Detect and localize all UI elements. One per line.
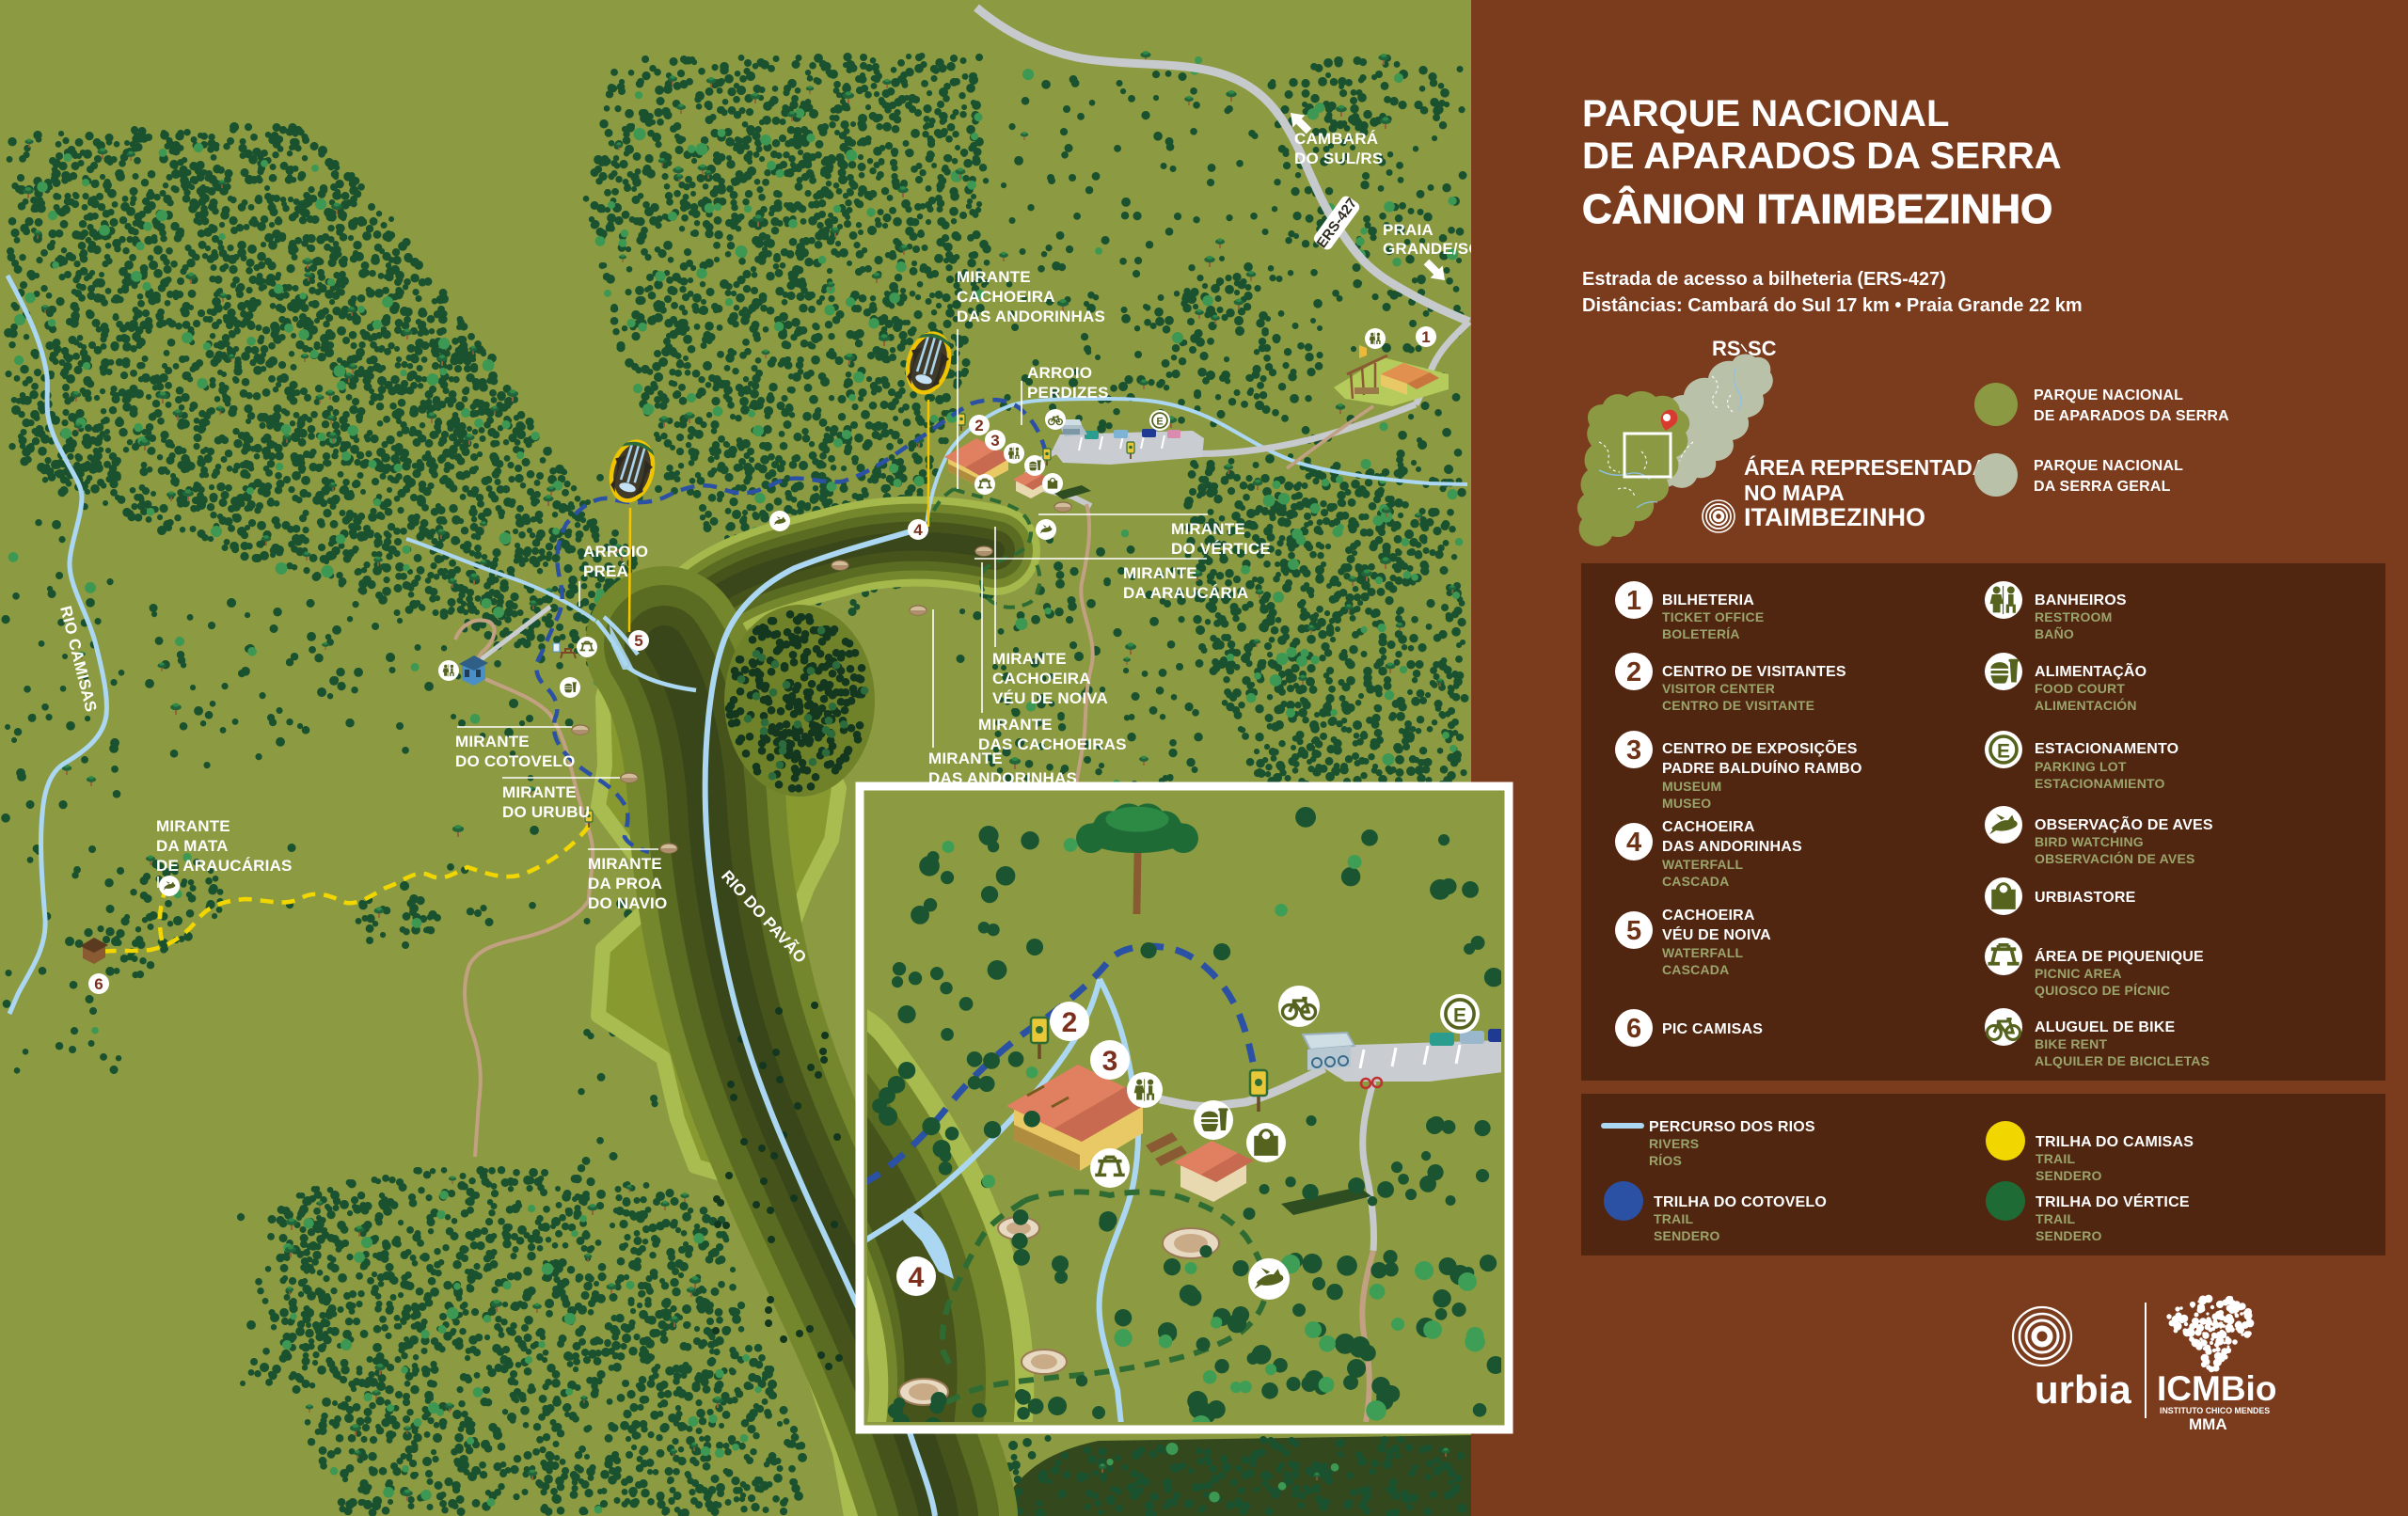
- svg-text:MUSEO: MUSEO: [1662, 796, 1711, 811]
- svg-text:ARROIO: ARROIO: [1027, 364, 1092, 382]
- svg-text:4: 4: [1626, 828, 1641, 858]
- svg-text:E: E: [1156, 417, 1163, 428]
- svg-text:DA MATA: DA MATA: [156, 837, 229, 855]
- svg-text:SENDERO: SENDERO: [2036, 1228, 2102, 1243]
- svg-text:TRAIL: TRAIL: [2036, 1151, 2075, 1166]
- svg-text:MUSEUM: MUSEUM: [1662, 779, 1721, 794]
- svg-text:DAS ANDORINHAS: DAS ANDORINHAS: [957, 308, 1105, 325]
- svg-text:BIKE RENT: BIKE RENT: [2035, 1036, 2107, 1051]
- svg-text:PICNIC AREA: PICNIC AREA: [2035, 966, 2122, 981]
- svg-text:CÂNION ITAIMBEZINHO: CÂNION ITAIMBEZINHO: [1582, 185, 2052, 232]
- svg-text:PRAIA: PRAIA: [1383, 221, 1434, 239]
- svg-text:3: 3: [1626, 735, 1641, 766]
- svg-text:DO NAVIO: DO NAVIO: [588, 894, 667, 912]
- svg-text:DA PROA: DA PROA: [588, 875, 662, 892]
- svg-text:WATERFALL: WATERFALL: [1662, 857, 1744, 872]
- svg-text:TRILHA DO CAMISAS: TRILHA DO CAMISAS: [2036, 1134, 2194, 1150]
- svg-text:URBIASTORE: URBIASTORE: [2035, 890, 2136, 906]
- svg-text:TRILHA DO COTOVELO: TRILHA DO COTOVELO: [1654, 1194, 1827, 1210]
- svg-text:E: E: [1453, 1004, 1466, 1026]
- svg-text:QUIOSCO DE PÍCNIC: QUIOSCO DE PÍCNIC: [2035, 983, 2170, 998]
- svg-text:CACHOEIRA: CACHOEIRA: [1662, 819, 1755, 835]
- svg-text:DA SERRA GERAL: DA SERRA GERAL: [2034, 479, 2171, 495]
- svg-text:ALIMENTAÇÃO: ALIMENTAÇÃO: [2035, 661, 2147, 680]
- svg-text:DO COTOVELO: DO COTOVELO: [455, 752, 576, 770]
- svg-text:BAÑO: BAÑO: [2035, 625, 2074, 641]
- svg-text:ESTACIONAMIENTO: ESTACIONAMIENTO: [2035, 776, 2165, 791]
- svg-text:OBSERVACIÓN DE AVES: OBSERVACIÓN DE AVES: [2035, 850, 2195, 866]
- svg-text:4: 4: [909, 1262, 925, 1293]
- svg-text:ÁREA REPRESENTADA: ÁREA REPRESENTADA: [1744, 454, 1988, 480]
- svg-text:FOOD COURT: FOOD COURT: [2035, 681, 2125, 696]
- svg-text:6: 6: [94, 975, 103, 993]
- svg-text:MIRANTE: MIRANTE: [588, 855, 662, 873]
- svg-text:1: 1: [1626, 586, 1641, 616]
- svg-text:RIVERS: RIVERS: [1649, 1136, 1699, 1151]
- svg-text:OBSERVAÇÃO DE AVES: OBSERVAÇÃO DE AVES: [2035, 814, 2213, 833]
- svg-text:PARQUE NACIONAL: PARQUE NACIONAL: [2034, 458, 2183, 474]
- svg-text:DO URUBU: DO URUBU: [502, 803, 590, 821]
- svg-text:MIRANTE: MIRANTE: [156, 817, 230, 835]
- svg-text:Estrada de acesso a bilheteria: Estrada de acesso a bilheteria (ERS-427): [1582, 269, 1946, 290]
- svg-text:DO VÉRTICE: DO VÉRTICE: [1171, 540, 1271, 558]
- svg-text:ALQUILER DE BICICLETAS: ALQUILER DE BICICLETAS: [2035, 1053, 2210, 1068]
- svg-text:3: 3: [990, 432, 999, 450]
- svg-text:DE APARADOS DA SERRA: DE APARADOS DA SERRA: [2034, 408, 2229, 424]
- svg-text:MMA: MMA: [2189, 1415, 2227, 1433]
- svg-text:CASCADA: CASCADA: [1662, 962, 1729, 977]
- svg-text:VISITOR CENTER: VISITOR CENTER: [1662, 681, 1775, 696]
- svg-text:WATERFALL: WATERFALL: [1662, 945, 1744, 960]
- svg-text:CENTRO DE VISITANTE: CENTRO DE VISITANTE: [1662, 698, 1814, 713]
- svg-text:ESTACIONAMENTO: ESTACIONAMENTO: [2035, 741, 2178, 757]
- svg-text:MIRANTE: MIRANTE: [978, 716, 1053, 734]
- svg-text:Distâncias: Cambará do Sul 17: Distâncias: Cambará do Sul 17 km • Praia…: [1582, 295, 2083, 316]
- svg-text:CACHOEIRA: CACHOEIRA: [992, 670, 1091, 687]
- svg-text:INSTITUTO CHICO MENDES: INSTITUTO CHICO MENDES: [2160, 1406, 2270, 1415]
- svg-text:BOLETERÍA: BOLETERÍA: [1662, 626, 1740, 641]
- svg-text:ALUGUEL DE BIKE: ALUGUEL DE BIKE: [2035, 1019, 2176, 1035]
- svg-text:ITAIMBEZINHO: ITAIMBEZINHO: [1744, 503, 1925, 531]
- svg-text:PARQUE NACIONAL: PARQUE NACIONAL: [1582, 93, 1949, 134]
- svg-text:2: 2: [1626, 657, 1641, 687]
- svg-text:BILHETERIA: BILHETERIA: [1662, 592, 1754, 608]
- svg-text:CACHOEIRA: CACHOEIRA: [1662, 908, 1755, 924]
- svg-text:DE ARAUCÁRIAS: DE ARAUCÁRIAS: [156, 857, 293, 875]
- svg-text:MIRANTE: MIRANTE: [957, 268, 1031, 286]
- svg-text:DE APARADOS DA SERRA: DE APARADOS DA SERRA: [1582, 135, 2062, 177]
- svg-text:DAS ANDORINHAS: DAS ANDORINHAS: [1662, 839, 1802, 855]
- svg-text:2: 2: [1062, 1007, 1078, 1038]
- svg-text:TRAIL: TRAIL: [2036, 1211, 2075, 1226]
- svg-text:2: 2: [974, 417, 983, 434]
- svg-text:MIRANTE: MIRANTE: [928, 750, 1003, 767]
- svg-text:RÍOS: RÍOS: [1649, 1153, 1682, 1168]
- svg-text:CENTRO DE VISITANTES: CENTRO DE VISITANTES: [1662, 664, 1846, 680]
- svg-text:BIRD WATCHING: BIRD WATCHING: [2035, 834, 2144, 849]
- svg-text:CENTRO DE EXPOSIÇÕES: CENTRO DE EXPOSIÇÕES: [1662, 738, 1858, 757]
- svg-text:5: 5: [1626, 916, 1641, 946]
- svg-text:1: 1: [1421, 328, 1430, 346]
- svg-text:4: 4: [913, 521, 923, 539]
- svg-text:TICKET OFFICE: TICKET OFFICE: [1662, 609, 1764, 624]
- svg-text:VÉU DE NOIVA: VÉU DE NOIVA: [992, 689, 1108, 707]
- svg-text:MIRANTE: MIRANTE: [992, 650, 1067, 668]
- svg-text:PARKING LOT: PARKING LOT: [2035, 759, 2127, 774]
- svg-text:ALIMENTACIÓN: ALIMENTACIÓN: [2035, 697, 2137, 713]
- svg-text:3: 3: [1102, 1046, 1118, 1077]
- svg-text:E: E: [1997, 740, 2010, 762]
- svg-text:6: 6: [1626, 1014, 1641, 1044]
- svg-text:BANHEIROS: BANHEIROS: [2035, 592, 2127, 608]
- svg-text:PREÁ: PREÁ: [583, 562, 628, 580]
- svg-text:DO SUL/RS: DO SUL/RS: [1294, 150, 1383, 167]
- svg-text:MIRANTE: MIRANTE: [502, 783, 577, 801]
- svg-text:urbia: urbia: [2035, 1367, 2131, 1412]
- svg-text:PERDIZES: PERDIZES: [1027, 384, 1109, 402]
- svg-text:ICMBio: ICMBio: [2157, 1369, 2276, 1408]
- svg-text:PERCURSO DOS RIOS: PERCURSO DOS RIOS: [1649, 1119, 1815, 1135]
- svg-text:CAMBARÁ: CAMBARÁ: [1294, 130, 1378, 148]
- svg-text:CACHOEIRA: CACHOEIRA: [957, 288, 1055, 306]
- svg-text:CASCADA: CASCADA: [1662, 874, 1729, 889]
- svg-text:RESTROOM: RESTROOM: [2035, 609, 2113, 624]
- svg-text:MIRANTE: MIRANTE: [455, 733, 530, 750]
- svg-text:SENDERO: SENDERO: [2036, 1168, 2102, 1183]
- svg-text:SENDERO: SENDERO: [1654, 1228, 1720, 1243]
- svg-text:PIC CAMISAS: PIC CAMISAS: [1662, 1021, 1763, 1037]
- svg-text:DA ARAUCÁRIA: DA ARAUCÁRIA: [1123, 584, 1248, 602]
- svg-text:GRANDE/SC: GRANDE/SC: [1383, 240, 1481, 258]
- svg-text:PARQUE NACIONAL: PARQUE NACIONAL: [2034, 387, 2183, 403]
- svg-text:PADRE BALDUÍNO RAMBO: PADRE BALDUÍNO RAMBO: [1662, 759, 1862, 777]
- svg-text:TRAIL: TRAIL: [1654, 1211, 1693, 1226]
- svg-text:MIRANTE: MIRANTE: [1171, 520, 1245, 538]
- svg-text:TRILHA DO VÉRTICE: TRILHA DO VÉRTICE: [2036, 1192, 2190, 1210]
- svg-text:MIRANTE: MIRANTE: [1123, 564, 1197, 582]
- svg-text:ÁREA DE PIQUENIQUE: ÁREA DE PIQUENIQUE: [2035, 947, 2204, 965]
- svg-text:ARROIO: ARROIO: [583, 543, 648, 561]
- svg-text:RS: RS: [1712, 337, 1741, 360]
- svg-text:5: 5: [634, 632, 642, 650]
- svg-text:VÉU DE NOIVA: VÉU DE NOIVA: [1662, 925, 1771, 943]
- svg-text:NO MAPA: NO MAPA: [1744, 481, 1845, 505]
